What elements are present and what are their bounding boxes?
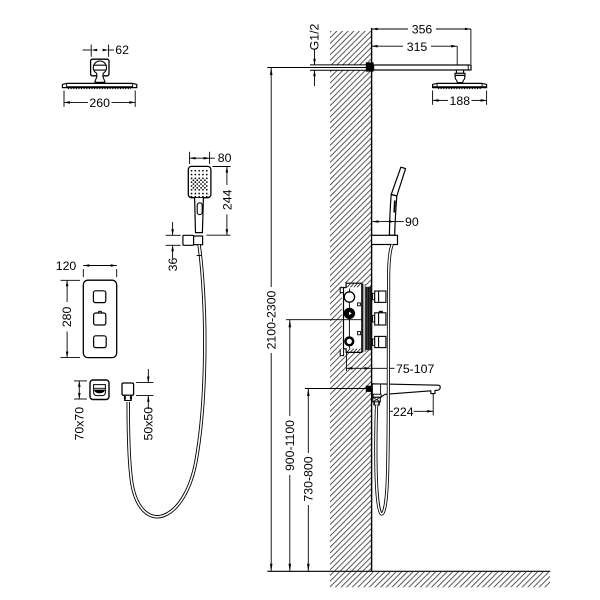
- svg-text:G1/2: G1/2: [308, 24, 322, 51]
- svg-text:62: 62: [115, 43, 129, 57]
- svg-text:280: 280: [60, 306, 74, 327]
- svg-text:900-1100: 900-1100: [283, 420, 297, 471]
- svg-text:80: 80: [218, 151, 232, 165]
- svg-text:315: 315: [407, 40, 428, 54]
- svg-text:2100-2300: 2100-2300: [265, 290, 279, 349]
- svg-text:70x70: 70x70: [73, 407, 87, 441]
- svg-text:75-107: 75-107: [396, 362, 434, 376]
- svg-text:244: 244: [220, 189, 234, 210]
- svg-text:50x50: 50x50: [142, 407, 156, 441]
- svg-text:188: 188: [450, 94, 471, 108]
- svg-text:224: 224: [393, 405, 414, 419]
- svg-text:120: 120: [56, 259, 77, 273]
- svg-text:90: 90: [405, 215, 419, 229]
- svg-text:36: 36: [166, 258, 180, 272]
- svg-text:356: 356: [412, 23, 433, 37]
- svg-text:260: 260: [89, 96, 110, 110]
- svg-text:730-800: 730-800: [302, 456, 316, 501]
